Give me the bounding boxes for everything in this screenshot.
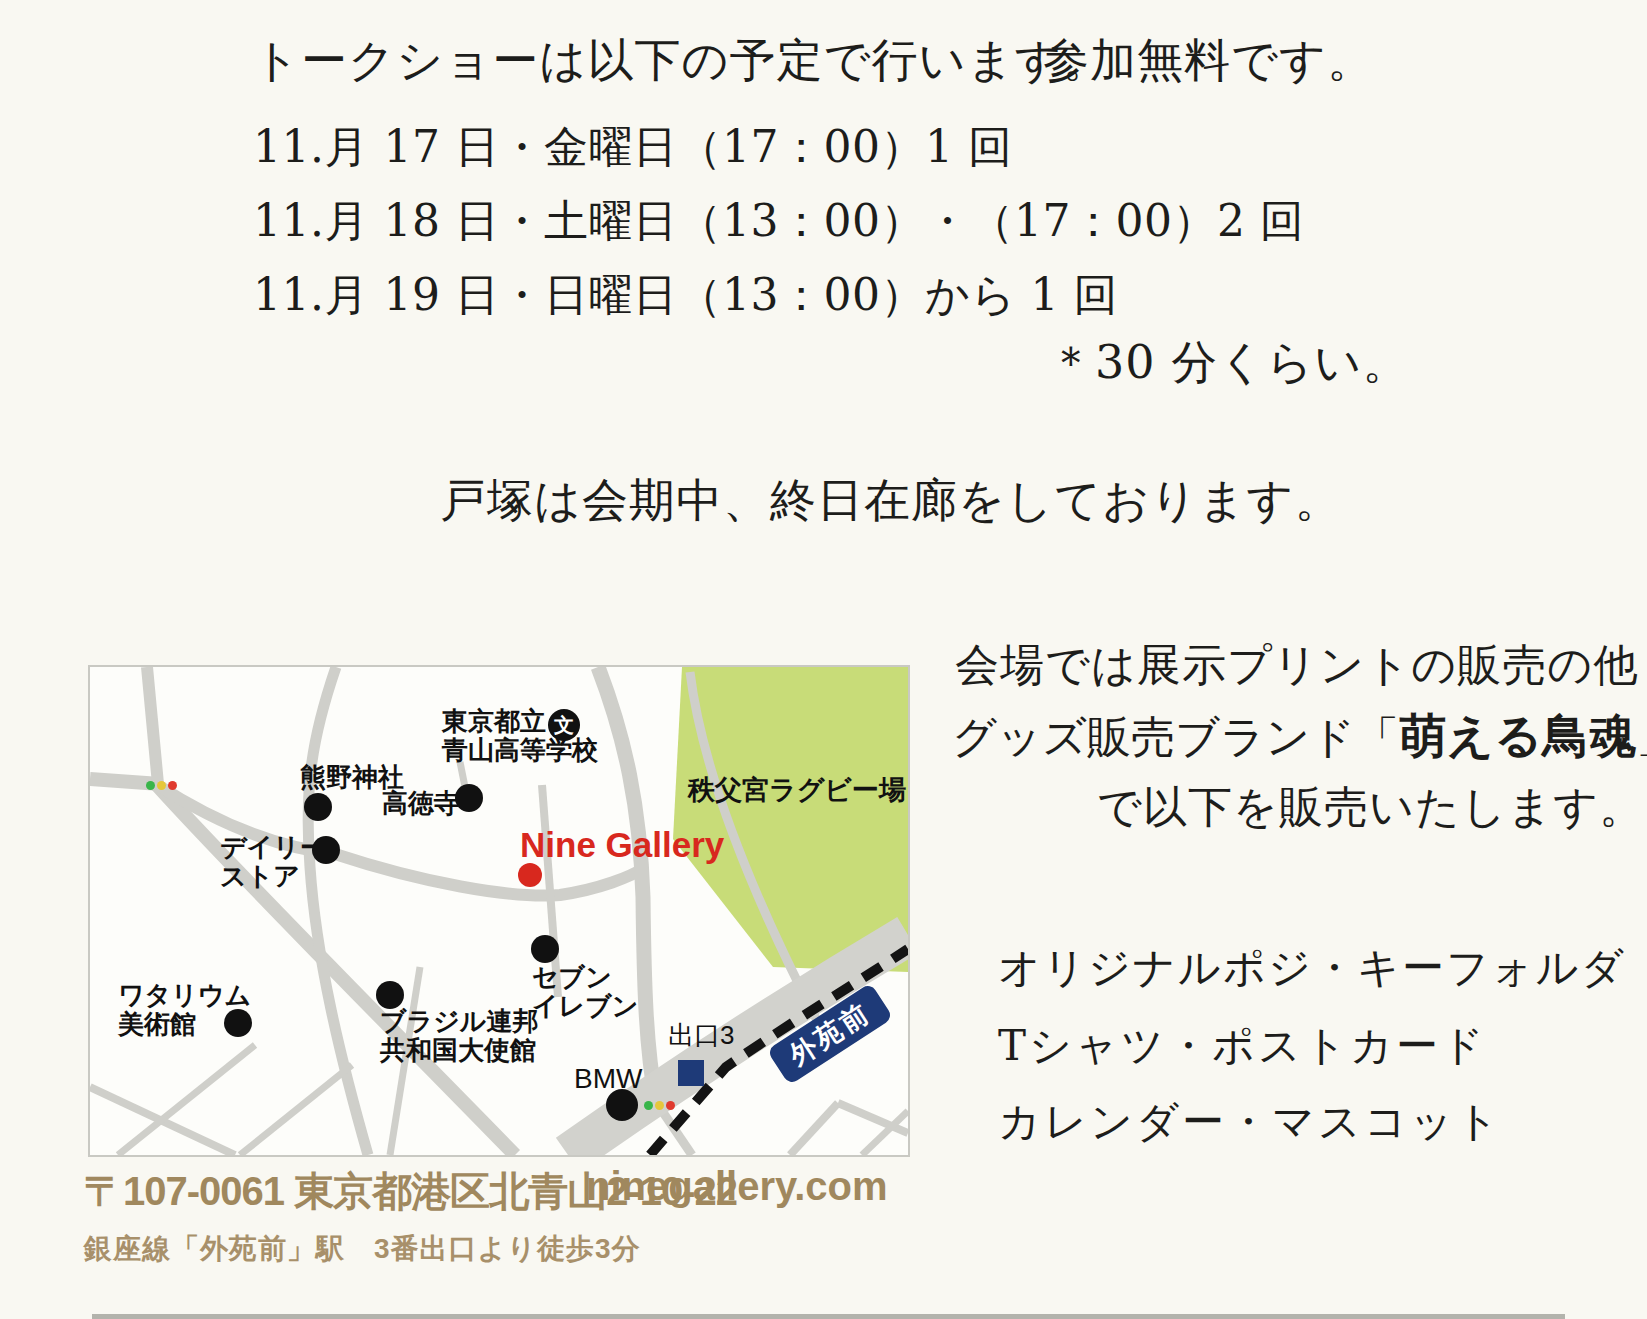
rugby-field-label: 秩父宮ラグビー場 <box>688 775 906 805</box>
schedule-line-1: 11.月 17 日・金曜日（17：00）1 回 <box>253 118 1012 177</box>
brand-line: グッズ販売ブランド「萌える鳥魂」 <box>952 705 1647 768</box>
poi-label-brazil-embassy: ブラジル連邦 共和国大使館 <box>380 1007 538 1065</box>
bracket-open: 「 <box>1355 711 1399 762</box>
schedule-line-3: 11.月 19 日・日曜日（13：00）から 1 回 <box>253 266 1118 325</box>
schedule-line-2: 11.月 18 日・土曜日（13：00）・（17：00）2 回 <box>253 192 1304 251</box>
nine-gallery-label: Nine Gallery <box>520 825 724 865</box>
exit3-label: 出口3 <box>668 1021 734 1050</box>
poi-marker-daily-store <box>312 836 340 864</box>
school-icon: 文 <box>548 709 580 741</box>
traffic-light-icon <box>644 1101 675 1110</box>
poi-label-daily-store: デイリー ストア <box>220 833 326 891</box>
website-url: ninegallery.com <box>586 1164 888 1209</box>
poi-label-kotokuji: 高徳寺 <box>382 789 460 818</box>
merch-item-3: カレンダー・マスコット <box>998 1094 1502 1150</box>
nine-gallery-marker <box>518 863 542 887</box>
poi-marker-seven-eleven <box>531 935 559 963</box>
traffic-light-icon <box>146 781 177 790</box>
scan-edge-shadow <box>92 1314 1565 1319</box>
flyer-page: トークショーは以下の予定で行います。 参加無料です。 11.月 17 日・金曜日… <box>0 0 1647 1319</box>
duration-note: ＊30 分くらい。 <box>1048 332 1409 394</box>
rugby-field-area <box>673 667 908 972</box>
poi-label-bmw: BMW <box>574 1063 642 1094</box>
poi-label-seven-eleven: セブン イレブン <box>532 963 638 1021</box>
brand-name: 萌える鳥魂 <box>1399 708 1636 763</box>
poi-marker-kumano <box>304 793 332 821</box>
free-admission-note: 参加無料です。 <box>1043 30 1374 92</box>
poi-marker-bmw <box>606 1089 638 1121</box>
merch-item-2: Tシャツ・ポストカード <box>998 1018 1487 1074</box>
poi-marker-brazil-embassy <box>376 981 404 1009</box>
attendance-note: 戸塚は会期中、終日在廊をしております。 <box>440 470 1342 532</box>
venue-map: 秩父宮ラグビー場 東京都立 青山高等学校 文 熊野神社 高徳寺 デイリー ストア… <box>88 665 910 1157</box>
poi-marker-watarium <box>224 1009 252 1037</box>
merch-item-1: オリジナルポジ・キーフォルダ <box>998 940 1626 996</box>
school-icon-glyph: 文 <box>554 712 574 739</box>
bracket-close: 」 <box>1636 711 1647 762</box>
exit3-marker <box>678 1060 704 1086</box>
poi-marker-kotokuji <box>455 784 483 812</box>
access-info: 銀座線「外苑前」駅 3番出口より徒歩3分 <box>84 1230 640 1268</box>
sales-closing: で以下を販売いたします。 <box>1097 778 1644 837</box>
talkshow-heading: トークショーは以下の予定で行います。 <box>253 30 1110 92</box>
sales-intro: 会場では展示プリントの販売の他 <box>955 636 1638 695</box>
brand-line-prefix: グッズ販売ブランド <box>952 711 1355 762</box>
